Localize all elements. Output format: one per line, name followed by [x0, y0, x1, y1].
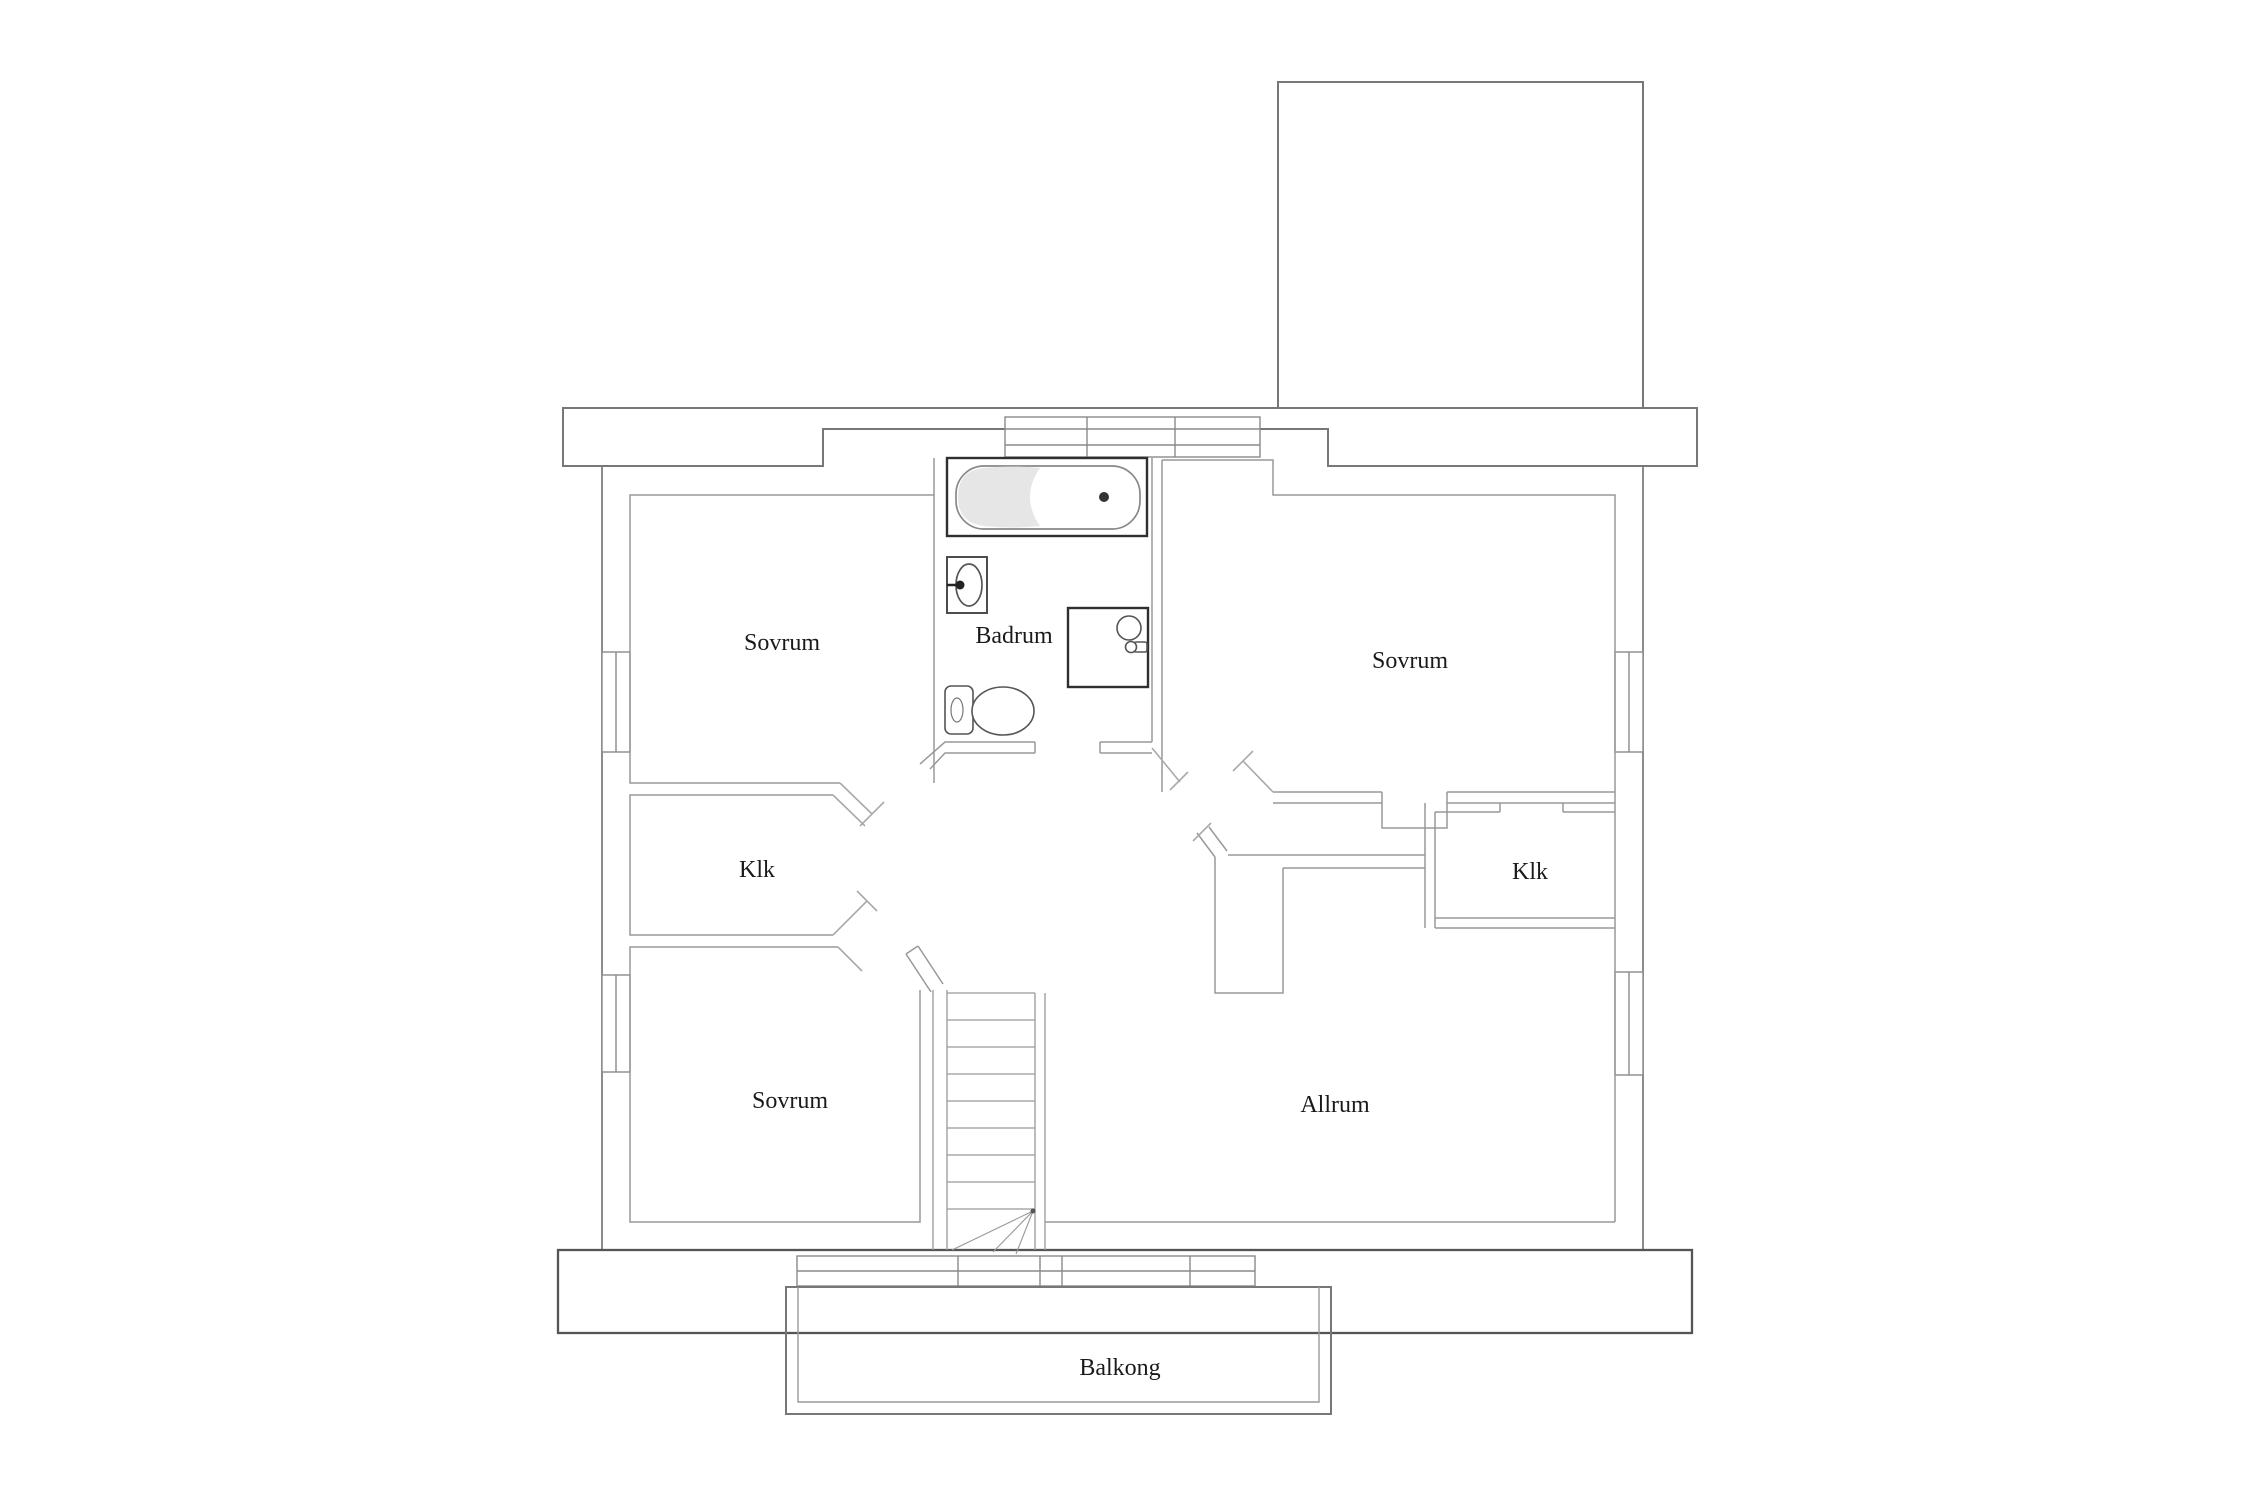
floor-plan-drawing: Sovrum Badrum Sovrum Klk Klk Sovrum Allr… — [0, 0, 2250, 1500]
door-icon — [1152, 748, 1188, 790]
room-label-sovrum-bottom-left: Sovrum — [752, 1088, 828, 1114]
chimney-outline — [1278, 82, 1643, 408]
room-label-klk-right: Klk — [1512, 859, 1548, 885]
room-label-allrum: Allrum — [1300, 1092, 1370, 1118]
floor-plan: Sovrum Badrum Sovrum Klk Klk Sovrum Allr… — [0, 0, 2250, 1500]
window-icon — [602, 975, 630, 1072]
window-icon — [1615, 652, 1643, 752]
room-label-klk-left: Klk — [739, 857, 775, 883]
doors — [833, 748, 1273, 971]
door-icon — [1233, 751, 1273, 792]
shower-icon — [1068, 608, 1148, 687]
sink-icon — [947, 557, 987, 613]
stairs-icon — [933, 990, 1045, 1254]
window-icon — [602, 652, 630, 752]
bathtub-icon — [947, 458, 1147, 536]
window-icon — [1615, 972, 1643, 1075]
outer-walls — [558, 82, 1697, 1333]
room-label-badrum: Badrum — [975, 623, 1053, 649]
balcony-door-icon — [797, 1256, 1255, 1286]
room-label-balkong: Balkong — [1079, 1355, 1160, 1381]
room-label-sovrum-right: Sovrum — [1372, 648, 1448, 674]
balcony — [786, 1287, 1331, 1414]
door-icon — [1193, 823, 1211, 841]
toilet-icon — [945, 686, 1034, 735]
bathroom-fixtures — [945, 458, 1148, 735]
door-icon — [833, 891, 877, 971]
window-icon — [1005, 417, 1260, 457]
door-icon — [833, 783, 884, 826]
room-label-sovrum-top-left: Sovrum — [744, 630, 820, 656]
windows — [602, 417, 1643, 1286]
